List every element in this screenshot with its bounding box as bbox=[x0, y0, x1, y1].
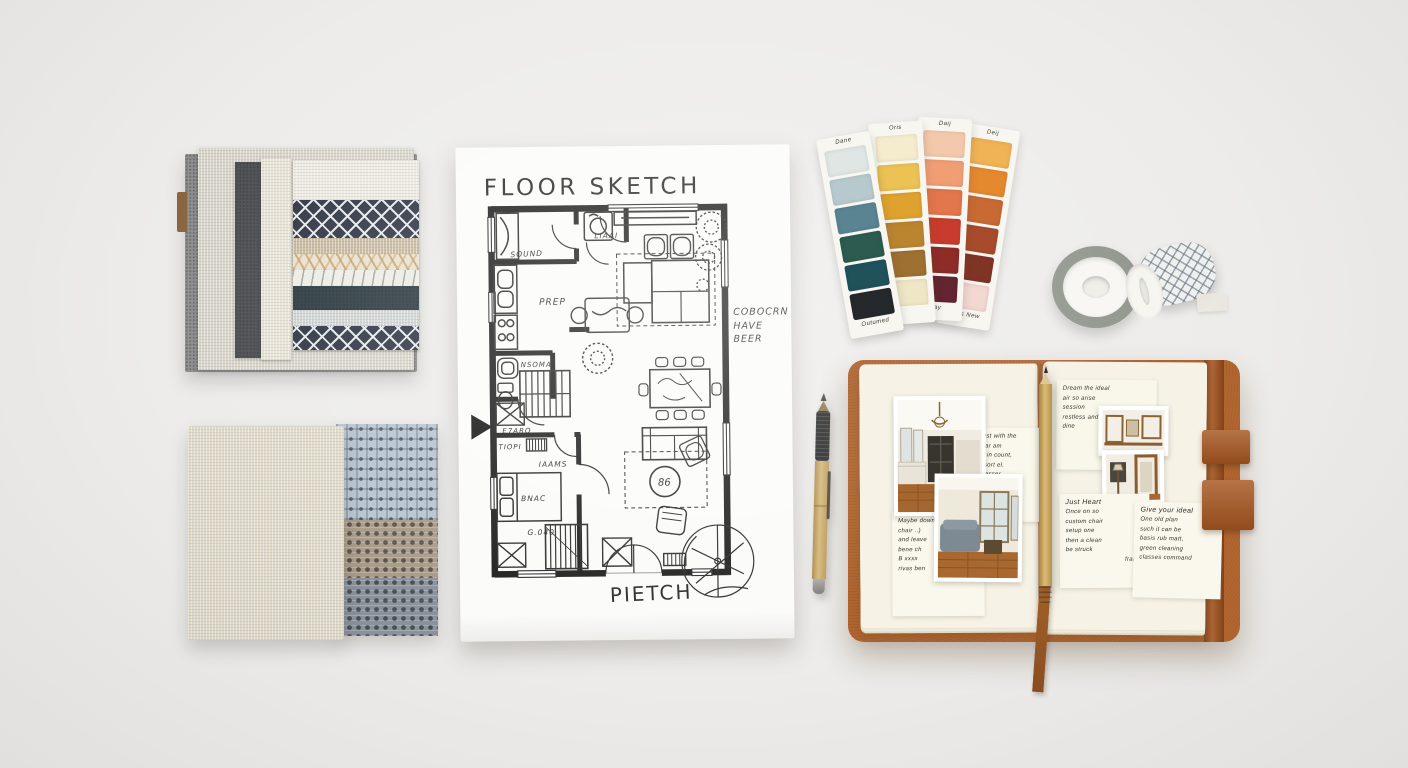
linen-swatch-group bbox=[188, 422, 440, 644]
notebook-strap-loop bbox=[1202, 480, 1254, 530]
pencil-lead-icon bbox=[1044, 366, 1048, 373]
note-line: be struck bbox=[1066, 546, 1144, 556]
paint-chip bbox=[829, 173, 875, 206]
pen-tip-cone bbox=[818, 401, 829, 411]
svg-text:HAVE: HAVE bbox=[733, 321, 763, 332]
swatch-linen-large bbox=[188, 426, 344, 640]
label-table-tag: 86 bbox=[658, 478, 671, 489]
washi-tape-tab bbox=[1196, 292, 1227, 312]
photo-living-room bbox=[934, 473, 1023, 582]
paint-chip bbox=[839, 230, 885, 263]
washi-roll-patterned bbox=[1117, 234, 1230, 339]
entry-marker-triangle bbox=[471, 414, 492, 439]
pencil-ferrule bbox=[1039, 586, 1052, 603]
paint-chip bbox=[967, 137, 1013, 169]
swatch-taupe-dots bbox=[336, 520, 438, 578]
interior-walls bbox=[491, 208, 630, 574]
swatch-blue-plaid bbox=[336, 424, 438, 520]
sectional-sofa bbox=[617, 253, 716, 326]
fabric-sample-book bbox=[185, 148, 423, 376]
label-bedroom-size: G.040 bbox=[527, 528, 555, 537]
swatch-dark-teal bbox=[293, 286, 419, 310]
note-line: frame! bbox=[1066, 556, 1144, 566]
paint-chip bbox=[824, 145, 870, 178]
swatch-cream-weave bbox=[293, 160, 419, 200]
swatch-cream-trellis bbox=[293, 254, 419, 270]
washi-roll-hole bbox=[1082, 276, 1110, 298]
check-swatch-stack bbox=[336, 424, 438, 636]
floor-plan-title: FLOOR SKETCH bbox=[484, 173, 701, 201]
swatch-tan-weave bbox=[293, 238, 419, 254]
svg-text:BEER: BEER bbox=[733, 334, 762, 345]
fabric-book-tab bbox=[177, 192, 187, 232]
svg-text:COBOCRN: COBOCRN bbox=[733, 306, 789, 318]
note-line: classes command bbox=[1139, 554, 1215, 565]
note-line: air so arise bbox=[1063, 394, 1151, 404]
swatch-pale-gray bbox=[293, 310, 419, 326]
wooden-pencil bbox=[1038, 366, 1053, 618]
paint-chip bbox=[875, 134, 919, 163]
label-cupboard: E7ARO bbox=[502, 427, 531, 435]
stairs-main bbox=[520, 371, 570, 418]
compass-sketch bbox=[681, 525, 754, 598]
note-line: Dream the ideal bbox=[1063, 385, 1151, 395]
label-bath: NSOMA bbox=[521, 361, 552, 369]
paint-chip bbox=[877, 163, 921, 192]
floor-plan-paper: FLOOR SKETCH bbox=[455, 144, 794, 641]
swatch-ivory-scroll bbox=[293, 270, 419, 286]
label-bedroom: BNAC bbox=[521, 494, 546, 503]
margin-annotation: COBOCRN HAVE BEER bbox=[733, 306, 789, 345]
pen-clip bbox=[827, 471, 831, 519]
paint-chip bbox=[879, 192, 923, 221]
swatch-gray-dots bbox=[336, 578, 438, 636]
label-entry: LIAAI bbox=[594, 231, 618, 240]
note-line: custom chair bbox=[1066, 517, 1144, 527]
pencil-body bbox=[1039, 384, 1052, 586]
paint-chip bbox=[834, 202, 880, 235]
notebook-left-page: Dust with thechar amall in count,resort … bbox=[859, 364, 1038, 629]
swatch-navy-lattice bbox=[293, 326, 419, 350]
label-hall: IAAMS bbox=[539, 460, 568, 469]
paint-chip bbox=[844, 259, 890, 292]
breakfast-table bbox=[571, 298, 644, 374]
pencil-sharpened-cone bbox=[1040, 373, 1051, 384]
floor-plan-footer: PIETCH bbox=[609, 579, 693, 607]
floor-plan-drawing: FLOOR SKETCH bbox=[455, 144, 794, 641]
label-kitchen: PREP bbox=[539, 298, 566, 308]
fabric-strip-cream bbox=[261, 158, 291, 360]
swatch-navy-lattice bbox=[293, 200, 419, 238]
notebook-strap-loop bbox=[1202, 430, 1250, 464]
bamboo-pen bbox=[807, 393, 835, 608]
label-landing: TIOPI bbox=[499, 443, 522, 451]
paint-chip bbox=[921, 159, 964, 187]
note-line: setup one bbox=[1066, 527, 1144, 537]
photo-shelf-frames bbox=[1098, 406, 1168, 456]
paint-card-fan: Dane Outumed Oris Daij Pay Deij Russ New bbox=[833, 116, 1013, 352]
notebook-right-page: Dream the idealair so arisesessionrestle… bbox=[1041, 361, 1207, 630]
pen-end-cap bbox=[813, 579, 825, 594]
note-line: then a clean bbox=[1066, 536, 1144, 546]
sticky-note-a-text: Once on socustom chairsetup onethen a cl… bbox=[1065, 508, 1143, 566]
note-line: Once on so bbox=[1065, 508, 1143, 518]
open-notebook: Dust with thechar amall in count,resort … bbox=[846, 352, 1256, 662]
pen-tip-icon bbox=[821, 393, 827, 401]
flatlay-scene: FLOOR SKETCH bbox=[0, 0, 1408, 768]
paint-chip bbox=[922, 130, 965, 158]
armchairs bbox=[644, 234, 693, 259]
dining-set bbox=[639, 357, 722, 420]
sticky-note-a-title: Just Heart bbox=[1065, 499, 1143, 507]
pen-grip bbox=[815, 411, 830, 461]
label-closet: SOUND bbox=[510, 249, 543, 259]
fabric-swatch-stack bbox=[293, 160, 419, 350]
pen-body bbox=[812, 461, 829, 579]
